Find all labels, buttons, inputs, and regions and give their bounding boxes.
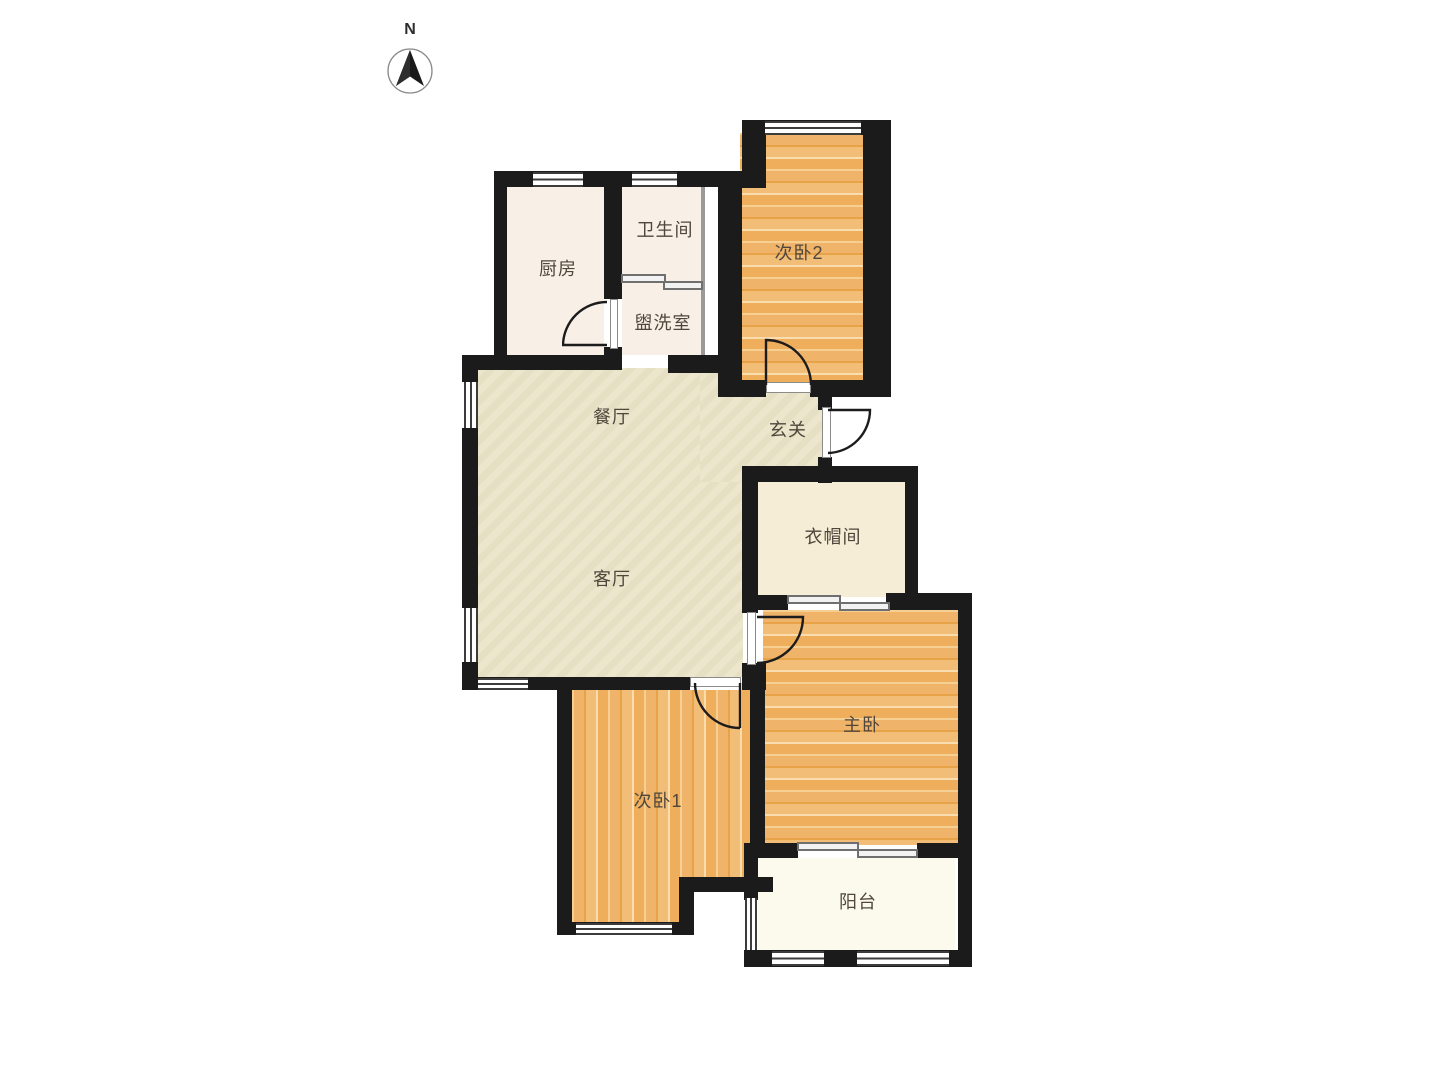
wall [718, 380, 766, 397]
wall [668, 355, 718, 373]
window-dining-west [464, 382, 478, 428]
wall [742, 482, 758, 613]
wall [958, 593, 972, 967]
window-bedroom1 [576, 923, 672, 935]
window-balcony-west [745, 898, 757, 950]
wall-thin [701, 187, 705, 355]
sliding-door-cloakroom-panel [787, 595, 841, 604]
window-living-west [464, 608, 478, 662]
wall [718, 171, 742, 382]
door-master [755, 613, 807, 667]
wall [750, 690, 765, 847]
room-label-foyer: 玄关 [769, 416, 807, 442]
wall [905, 482, 918, 595]
window-bedroom2 [765, 121, 861, 135]
wall [557, 690, 572, 935]
wall [494, 171, 507, 370]
wall [679, 892, 694, 922]
floor-plan: 厨房 卫生间 盥洗室 次卧2 餐厅 玄关 客厅 衣帽间 主卧 次卧1 阳台 N [0, 0, 1440, 1080]
door-kitchen [562, 299, 610, 349]
room-label-bedroom1: 次卧1 [633, 787, 682, 813]
wall [462, 355, 478, 382]
compass: N [375, 22, 445, 114]
wall [462, 428, 478, 608]
wall [744, 843, 758, 900]
wall [462, 355, 622, 370]
wall [917, 843, 958, 858]
door-entry [826, 406, 874, 456]
room-label-master: 主卧 [843, 711, 881, 737]
room-label-living: 客厅 [593, 565, 631, 591]
wall [863, 120, 891, 397]
sliding-door-balcony-panel [797, 842, 859, 851]
room-label-kitchen: 厨房 [539, 255, 577, 281]
exterior-notch [694, 892, 750, 923]
room-label-bedroom2: 次卧2 [774, 239, 823, 265]
sliding-door-cloakroom-panel [839, 602, 890, 611]
window-balcony-south1 [772, 951, 824, 966]
window-living-south [478, 678, 528, 690]
window-bathroom [632, 172, 677, 187]
wall [604, 171, 622, 299]
room-label-balcony: 阳台 [839, 888, 877, 914]
compass-north-label: N [404, 21, 416, 39]
window-balcony-south2 [857, 951, 949, 966]
room-label-dining: 餐厅 [593, 403, 631, 429]
wall [742, 595, 788, 610]
wall [757, 843, 798, 858]
room-label-washroom: 盥洗室 [635, 309, 692, 335]
door-bedroom1 [691, 679, 743, 732]
room-label-cloakroom: 衣帽间 [805, 523, 862, 549]
doorframe-kitchen [610, 299, 618, 349]
window-kitchen [533, 172, 583, 187]
wall [742, 663, 766, 690]
room-label-bathroom: 卫生间 [637, 216, 694, 242]
sliding-door-bathroom-panel [621, 274, 666, 283]
door-bedroom2 [764, 336, 814, 388]
wall [679, 877, 773, 892]
wall [604, 347, 622, 370]
wall [742, 466, 918, 482]
sliding-door-balcony-panel [857, 849, 918, 858]
sliding-door-bathroom-panel [663, 281, 703, 290]
